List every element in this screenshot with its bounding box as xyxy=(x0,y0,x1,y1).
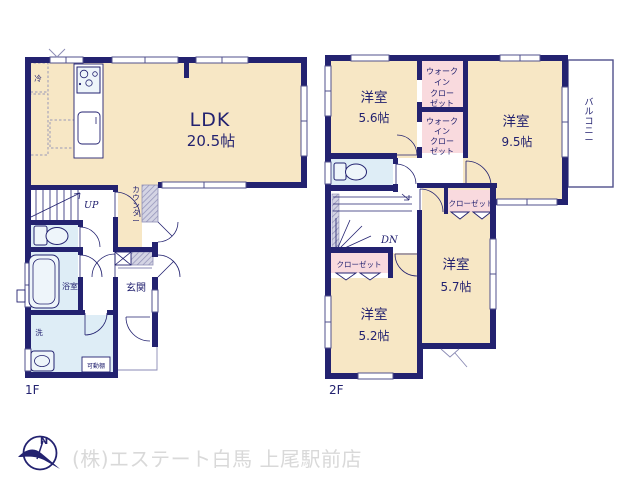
porch-outline xyxy=(118,347,157,370)
compass-icon: N xyxy=(18,436,60,470)
room-9-5-label: 洋室 xyxy=(503,113,530,130)
shelf-label: 可動棚 xyxy=(87,362,105,370)
wic2-line-2: クロー xyxy=(430,137,454,146)
ldk-label: LDK xyxy=(190,109,231,131)
room-9-5-size: 9.5帖 xyxy=(501,134,532,149)
vent-box xyxy=(17,290,25,302)
room-9-5-floor xyxy=(468,61,562,199)
wic1-line-3: ゼット xyxy=(430,98,454,108)
room-fills-1f xyxy=(31,63,301,372)
stairs-up-label: UP xyxy=(84,200,99,211)
staircase-2f xyxy=(333,194,412,252)
floor-2f: 洋室 5.6帖 ウォーク イン クロー ゼット ウォーク イン クロー ゼット … xyxy=(325,55,613,397)
wic2-line-1: イン xyxy=(434,127,450,136)
wic1-line-2: クロー xyxy=(430,89,454,98)
room-5-2-size: 5.2帖 xyxy=(358,328,389,343)
floor-1f-label: 1F xyxy=(25,383,40,397)
floor-1f: LDK 20.5帖 冷 カウンター 玄関 浴室 洗 可動棚 UP 1F xyxy=(17,49,307,397)
floor-2f-label: 2F xyxy=(329,383,344,397)
wic1-line-0: ウォーク xyxy=(426,67,458,76)
ldk-size-label: 20.5帖 xyxy=(187,132,235,150)
wic2-line-0: ウォーク xyxy=(426,117,458,126)
stairs-down-label: DN xyxy=(380,235,399,246)
watermark-text: (株)エステート白馬 上尾駅前店 xyxy=(72,447,362,471)
room-5-7-label: 洋室 xyxy=(443,256,470,273)
staircase-1f xyxy=(31,190,80,220)
toilet-tank-2f xyxy=(334,163,346,180)
awning-mark xyxy=(49,49,65,57)
bath-label: 浴室 xyxy=(62,281,78,291)
stair-handrail xyxy=(332,194,339,250)
floor-plan: LDK 20.5帖 冷 カウンター 玄関 浴室 洗 可動棚 UP 1F xyxy=(0,0,640,480)
room-5-2-floor xyxy=(331,278,417,373)
fridge-label: 冷 xyxy=(34,73,42,83)
counter-label: カウンター xyxy=(132,185,140,226)
balcony-label: バルコニー xyxy=(584,97,593,146)
wic2-line-3: ゼット xyxy=(430,146,454,156)
room-5-6-label: 洋室 xyxy=(361,89,388,106)
entrance-label: 玄関 xyxy=(126,281,146,294)
ldk-floor xyxy=(31,63,301,185)
toilet-bowl-2f xyxy=(346,164,367,180)
room-5-6-floor xyxy=(331,61,417,158)
wic1-line-1: イン xyxy=(434,78,450,87)
room-5-7-size: 5.7帖 xyxy=(440,279,471,294)
laundry-label: 洗 xyxy=(35,327,43,337)
room-5-2-label: 洋室 xyxy=(361,306,388,323)
vent-mark-5-7 xyxy=(441,349,467,367)
kitchen-sink xyxy=(78,112,100,144)
room-5-6-size: 5.6帖 xyxy=(358,110,389,125)
closet-5-7-label: クローゼット xyxy=(449,198,494,208)
closet-5-2-label: クローゼット xyxy=(337,259,382,269)
counter-strip xyxy=(142,185,158,222)
entrance-step-hatch xyxy=(131,252,153,265)
toilet-tank-1f xyxy=(34,226,47,245)
toilet-bowl-1f xyxy=(46,228,68,245)
